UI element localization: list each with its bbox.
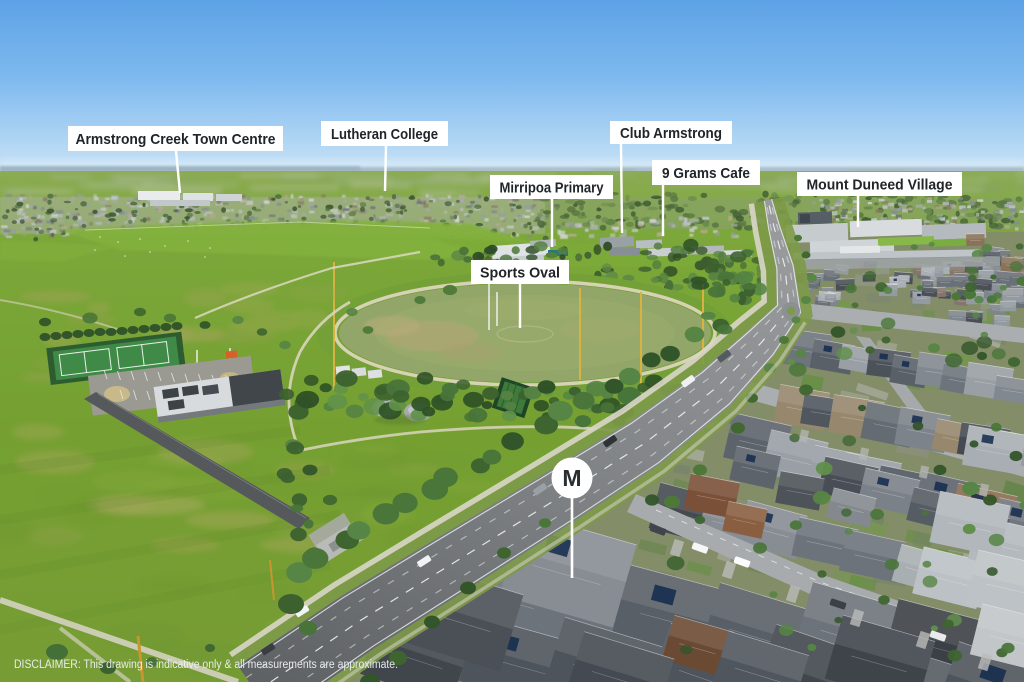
svg-text:Armstrong Creek Town Centre: Armstrong Creek Town Centre xyxy=(76,131,276,148)
svg-text:M: M xyxy=(562,465,581,491)
svg-text:9 Grams Cafe: 9 Grams Cafe xyxy=(662,165,750,182)
svg-text:DISCLAIMER: This drawing is in: DISCLAIMER: This drawing is indicative o… xyxy=(14,659,398,671)
svg-text:Sports Oval: Sports Oval xyxy=(480,264,560,281)
svg-text:Mirripoa Primary: Mirripoa Primary xyxy=(500,179,605,196)
svg-text:Lutheran College: Lutheran College xyxy=(331,126,438,143)
svg-text:Club Armstrong: Club Armstrong xyxy=(620,125,722,142)
svg-text:Mount Duneed Village: Mount Duneed Village xyxy=(807,176,953,193)
